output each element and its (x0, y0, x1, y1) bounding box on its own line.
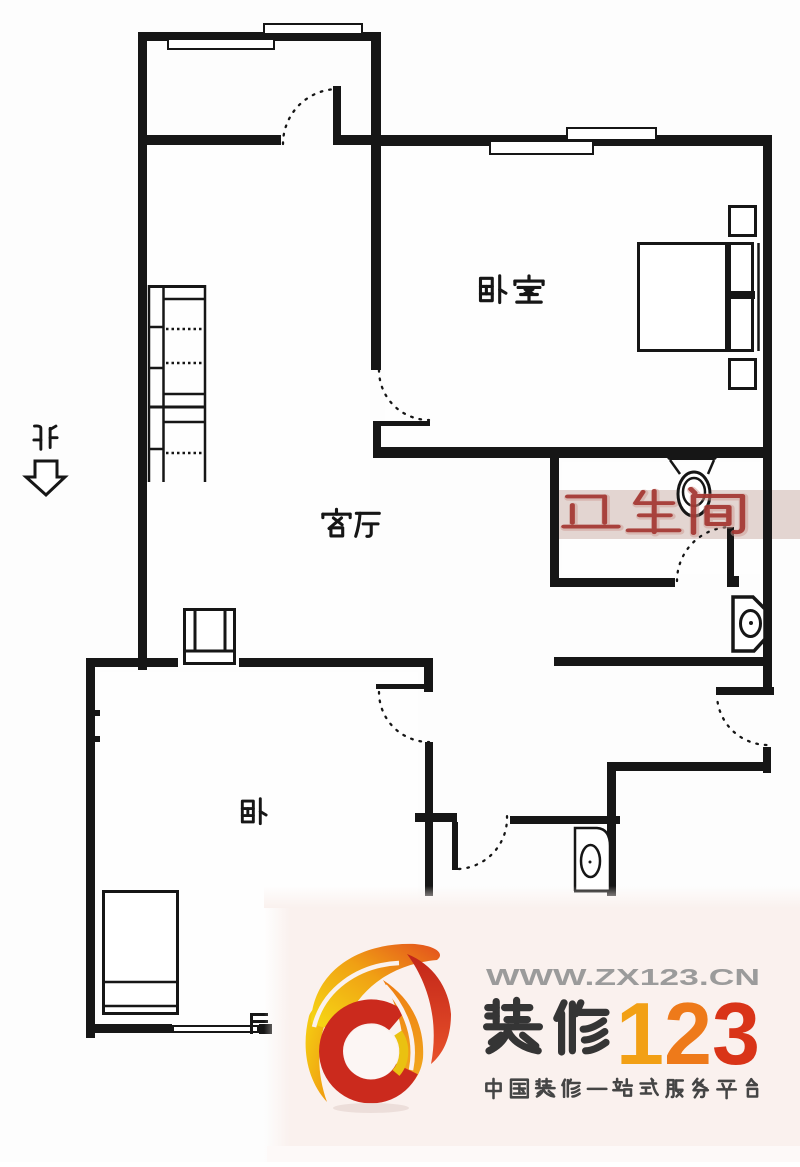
svg-text:123: 123 (616, 984, 760, 1083)
